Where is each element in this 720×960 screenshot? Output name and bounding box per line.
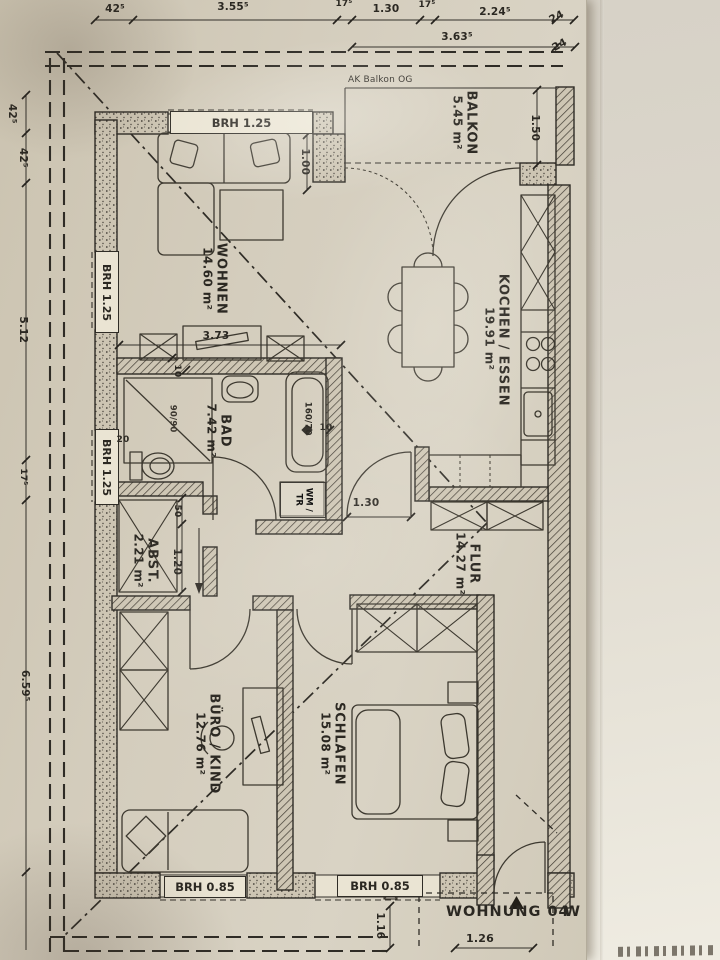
room-label-flur: FLUR 14.27 m² — [453, 519, 480, 609]
dim-balkon-150: 1.50 — [528, 104, 540, 152]
dim-sofa-100: 1.00 — [298, 144, 310, 180]
furniture-kitchen — [388, 195, 555, 487]
dim-top-17b: 17⁵ — [414, 1, 440, 11]
dim-top-42: 42⁵ — [100, 4, 130, 16]
dim-wall-20: 20 — [112, 436, 134, 446]
dim-abst-50: 50 — [171, 498, 181, 524]
dim-left-659: 6.59⁵ — [18, 666, 30, 706]
room-label-bad: BAD 7.42 m² — [204, 391, 231, 471]
label-shower-size: 90/90 — [167, 401, 176, 437]
label-wohnung-04: WOHNUNG 04 — [446, 905, 550, 921]
d im-wall-10b: 10 — [316, 424, 336, 434]
dim-wohnen-373: 3.73 — [196, 331, 236, 343]
window-label-wohnen: BRH 1.25 — [170, 111, 313, 134]
window-label-schlafen: BRH 0.85 — [337, 875, 423, 897]
label-tub-size: 160/70 — [302, 399, 311, 439]
room-label-wohnen: WOHNEN 14.60 m² — [200, 219, 227, 339]
room-label-kochen: KOCHEN / ESSEN 19.91 m² — [482, 274, 509, 404]
label-wm-tr: WM / TR — [280, 482, 326, 518]
dim-left-42b: 42⁵ — [16, 143, 28, 173]
room-label-schlafen: SCHLAFEN 15.08 m² — [318, 689, 345, 799]
label-neighbor-partial: W — [564, 905, 580, 921]
dim-top-17a: 17⁵ — [331, 0, 357, 10]
floorplan-sheet: 42⁵ 3.55⁵ 17⁵ 1.30 17⁵ 2.24⁵ 24 3.63⁵ 24… — [0, 0, 587, 960]
dim-wall-10a: 10 — [171, 361, 181, 381]
windows — [92, 110, 440, 900]
furniture-schlafen — [352, 604, 478, 841]
room-label-buero: BÜRO / KIND 12.76 m² — [193, 689, 220, 799]
dim-top-355: 3.55⁵ — [213, 2, 253, 14]
room-label-balkon: BALKON 5.45 m² — [450, 78, 477, 168]
dim-entry-126: 1.26 — [460, 933, 500, 945]
dim-left-17: 17⁵ — [17, 464, 27, 490]
dim-left-42a: 42⁵ — [5, 99, 17, 129]
label-ak-balkon: AK Balkon OG — [348, 76, 430, 86]
dim-top-363: 3.63⁵ — [435, 32, 479, 44]
dim-flur-door-130: 1.30 — [348, 498, 384, 510]
dim-abst-120: 1.20 — [170, 547, 182, 577]
window-label-buero: BRH 0.85 — [164, 876, 246, 898]
photo-background: 42⁵ 3.55⁵ 17⁵ 1.30 17⁵ 2.24⁵ 24 3.63⁵ 24… — [0, 0, 720, 960]
dim-entry-116: 1.16 — [373, 911, 385, 941]
dim-top-130: 1.30 — [366, 4, 406, 16]
furniture-flur — [431, 502, 543, 530]
dim-top-224: 2.24⁵ — [471, 7, 519, 19]
window-label-left-1: BRH 1.25 — [95, 251, 119, 333]
room-label-abst: ABST. 2.21 m² — [131, 521, 158, 601]
dim-left-512: 5.12 — [16, 315, 28, 345]
